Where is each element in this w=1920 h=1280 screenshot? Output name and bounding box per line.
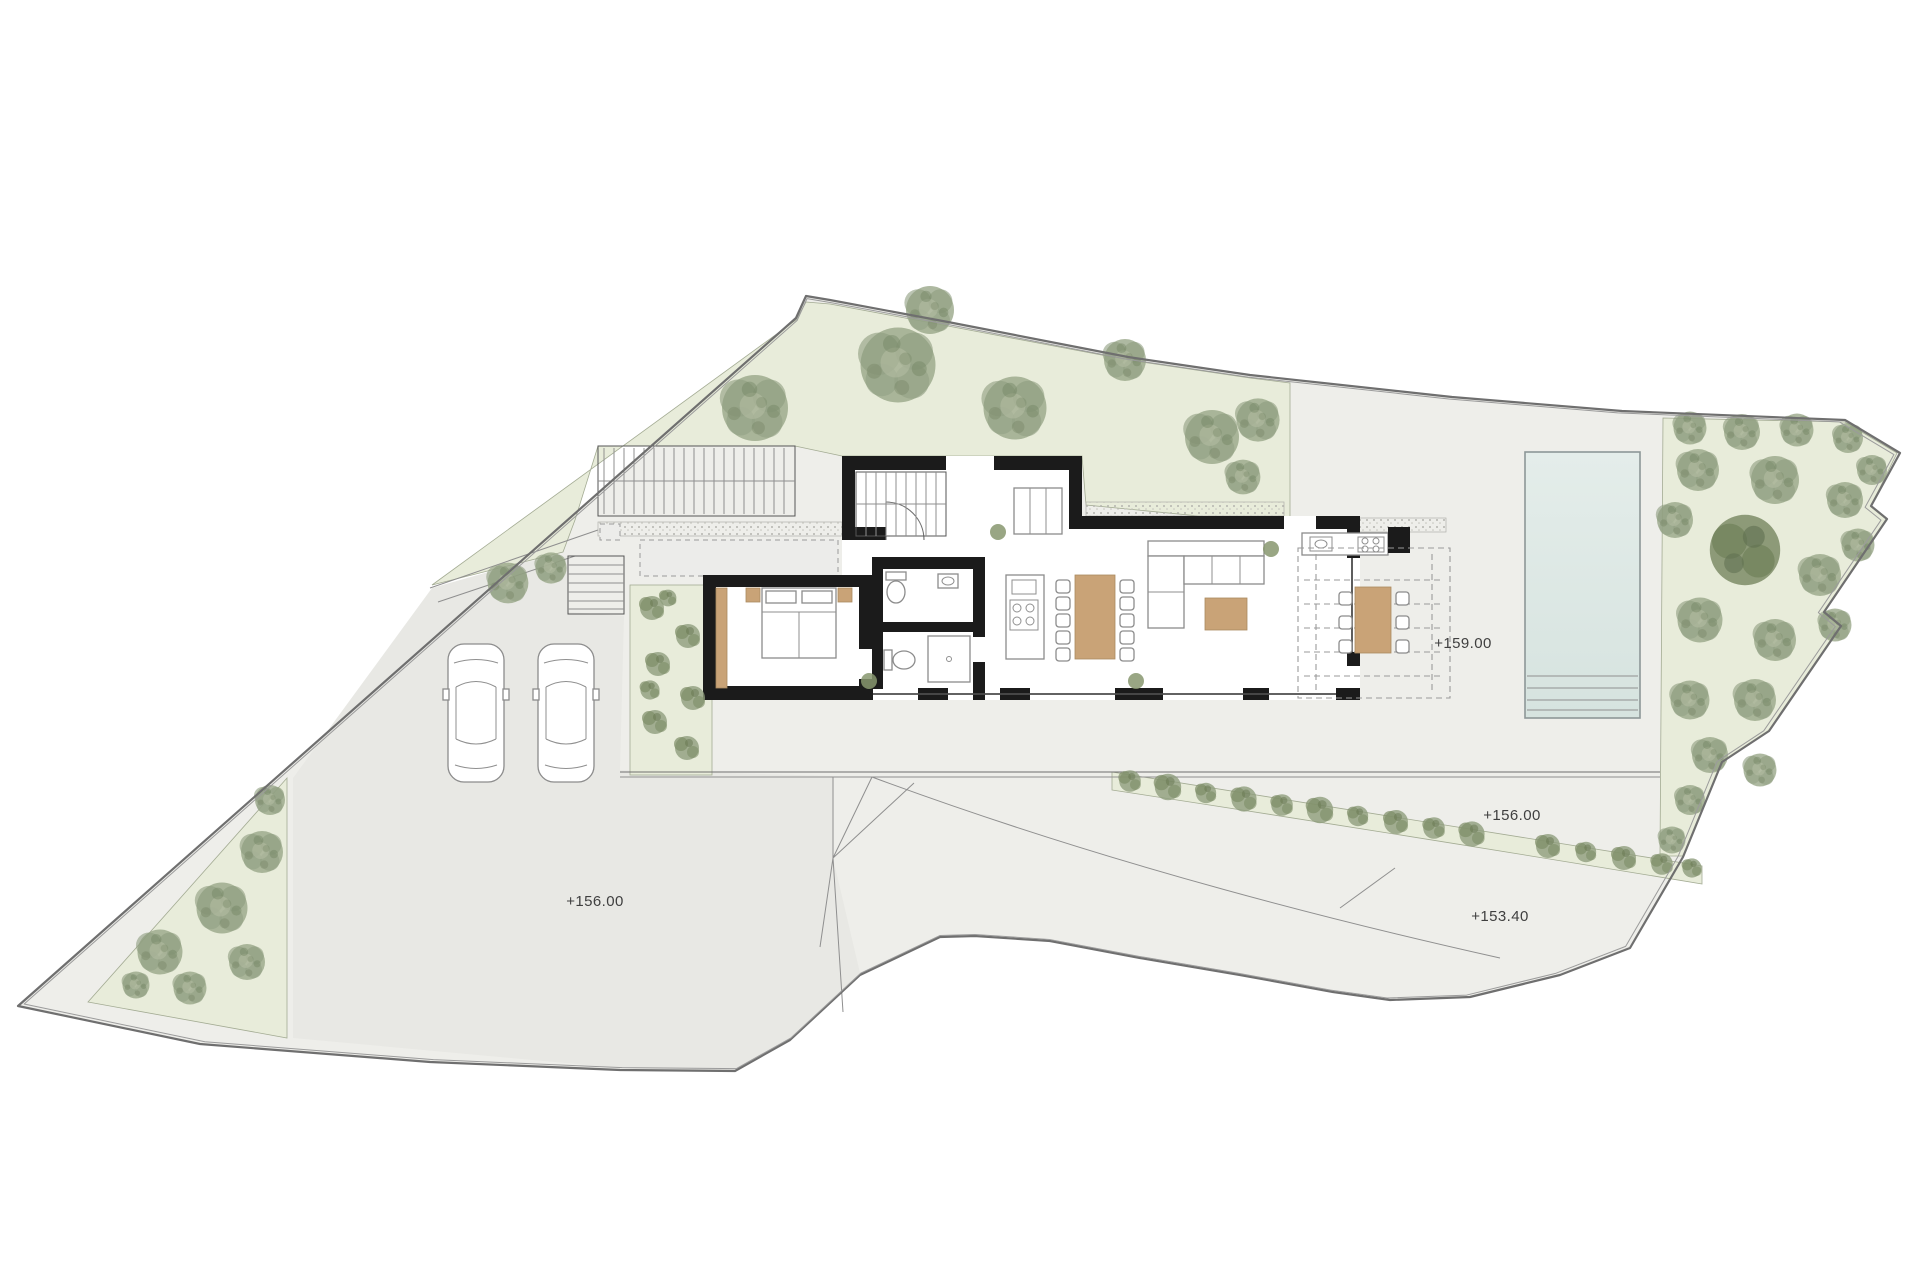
shower (928, 636, 970, 682)
washbasin (938, 574, 958, 588)
coffee-table (1205, 598, 1247, 630)
chair (1120, 614, 1134, 627)
chair (1056, 631, 1070, 644)
chair (1339, 640, 1352, 653)
chair (1120, 648, 1134, 661)
chair (1120, 631, 1134, 644)
dining-table (1056, 575, 1134, 661)
car (443, 644, 509, 782)
closet (1014, 488, 1062, 534)
swimming-pool (1525, 452, 1640, 718)
toilet-tank (886, 572, 906, 580)
exterior-stair-upper (598, 446, 795, 516)
outdoor-dining-table (1339, 587, 1409, 653)
elevation-label-driveway: +156.00 (566, 893, 623, 910)
entry-canopy-post (600, 524, 620, 540)
exterior-stair-lower (568, 556, 624, 614)
bed (746, 588, 852, 658)
tree-symbol (1710, 515, 1780, 585)
toilet (887, 581, 905, 603)
car (533, 644, 599, 782)
site-plan-canvas: +159.00 +156.00 +156.00 +153.40 (0, 0, 1920, 1280)
nightstand (746, 588, 760, 602)
chair (1056, 648, 1070, 661)
kitchen-island (1006, 575, 1044, 659)
site-plan-page: +159.00 +156.00 +156.00 +153.40 (0, 0, 1920, 1280)
chair (1396, 640, 1409, 653)
chair (1339, 592, 1352, 605)
chair (1396, 616, 1409, 629)
staircase (856, 472, 946, 536)
chair (1056, 614, 1070, 627)
chair (1056, 597, 1070, 610)
elevation-label-lower-terrace: +153.40 (1471, 908, 1528, 925)
chair (1339, 616, 1352, 629)
bedroom-wood-wall (716, 588, 727, 688)
elevation-label-garden-slope: +156.00 (1483, 807, 1540, 824)
toilet (893, 651, 915, 669)
chair (1396, 592, 1409, 605)
elevation-label-pool-terrace: +159.00 (1434, 635, 1491, 652)
entry-canopy (640, 540, 838, 576)
chair (1056, 580, 1070, 593)
nightstand (838, 588, 852, 602)
chair (1120, 580, 1134, 593)
chair (1120, 597, 1134, 610)
toilet-tank (884, 650, 892, 670)
tree-symbol (1742, 754, 1776, 787)
